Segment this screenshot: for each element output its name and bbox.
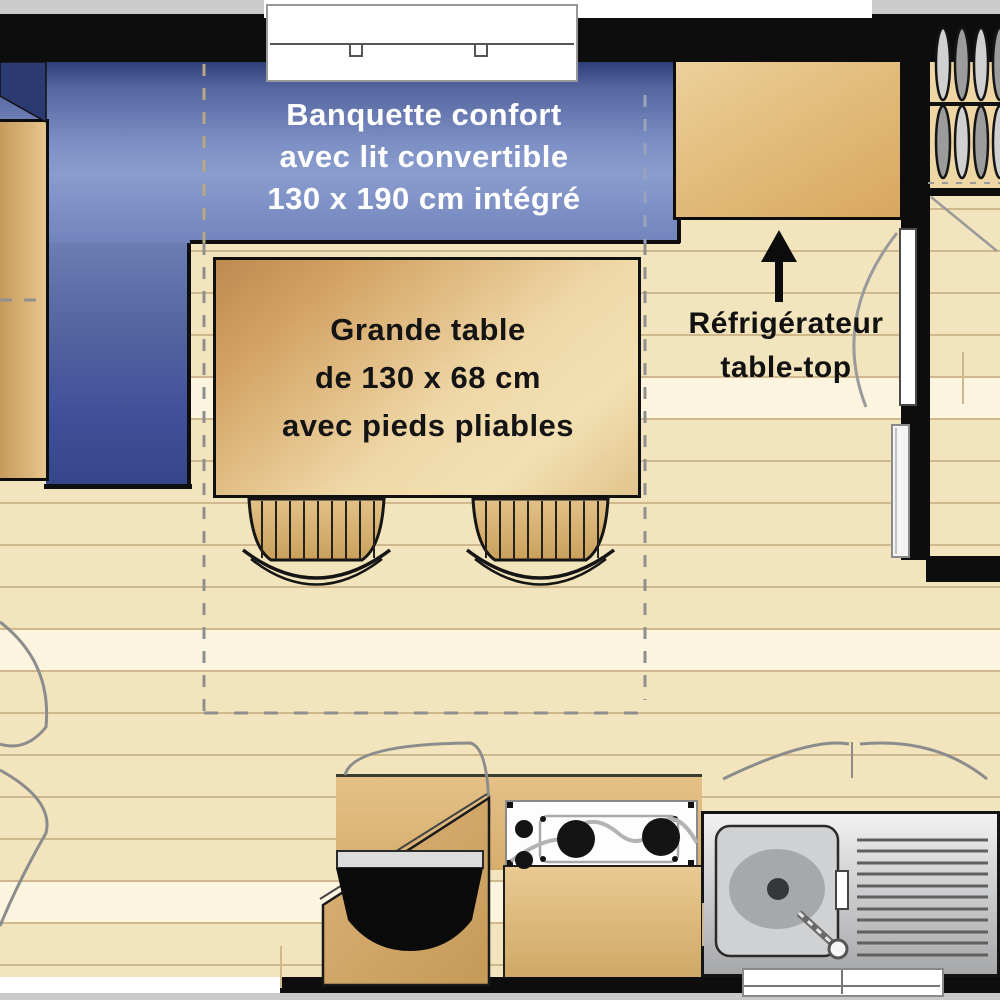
clothes-hanger-icon xyxy=(993,28,1000,100)
table-label: Grande table de 130 x 68 cm avec pieds p… xyxy=(216,306,640,450)
clothes-hanger-icon xyxy=(993,106,1000,178)
fridge-arrow-icon xyxy=(761,230,797,302)
fridge-label-line1: Réfrigérateur xyxy=(652,302,920,346)
fridge-label: Réfrigérateur table-top xyxy=(652,302,920,390)
table-label-line1: Grande table xyxy=(216,306,640,354)
clothes-hanger-icon xyxy=(955,28,969,100)
clothes-hanger-icon xyxy=(936,28,950,100)
banquette-label-line2: avec lit convertible xyxy=(198,136,650,178)
sink xyxy=(716,826,988,958)
stool xyxy=(243,499,390,585)
banquette-label-line1: Banquette confort xyxy=(198,94,650,136)
faucet xyxy=(836,871,848,909)
gas-hob xyxy=(507,802,697,869)
sink-drain xyxy=(767,878,789,900)
burner-large xyxy=(557,820,595,858)
burner-small xyxy=(515,851,533,869)
banquette-label-line3: 130 x 190 cm intégré xyxy=(198,178,650,220)
wardrobe-door-swing xyxy=(931,197,997,251)
basin-rim xyxy=(337,851,483,868)
clothes-hanger-icon xyxy=(974,106,988,178)
floor-plan: Banquette confort avec lit convertible 1… xyxy=(0,0,1000,1000)
wardrobe-hangers xyxy=(930,28,1000,178)
banquette-corner-wedge xyxy=(0,62,46,122)
clothes-hanger-icon xyxy=(955,106,969,178)
burner-small xyxy=(515,820,533,838)
table-label-line2: de 130 x 68 cm xyxy=(216,354,640,402)
sink-drainer xyxy=(857,840,988,955)
clothes-hanger-icon xyxy=(936,106,950,178)
stool xyxy=(467,499,614,585)
clothes-hanger-icon xyxy=(974,28,988,100)
bottom-window-details xyxy=(744,970,940,994)
banquette-label: Banquette confort avec lit convertible 1… xyxy=(198,94,650,220)
fridge-label-line2: table-top xyxy=(652,346,920,390)
cupboard-door-swing-arc xyxy=(0,622,47,926)
burner-large xyxy=(642,818,680,856)
washbasin-unit xyxy=(320,794,489,985)
table-label-line3: avec pieds pliables xyxy=(216,402,640,450)
top-window-details xyxy=(270,44,574,56)
overhead-cupboard-arcs xyxy=(345,742,987,817)
